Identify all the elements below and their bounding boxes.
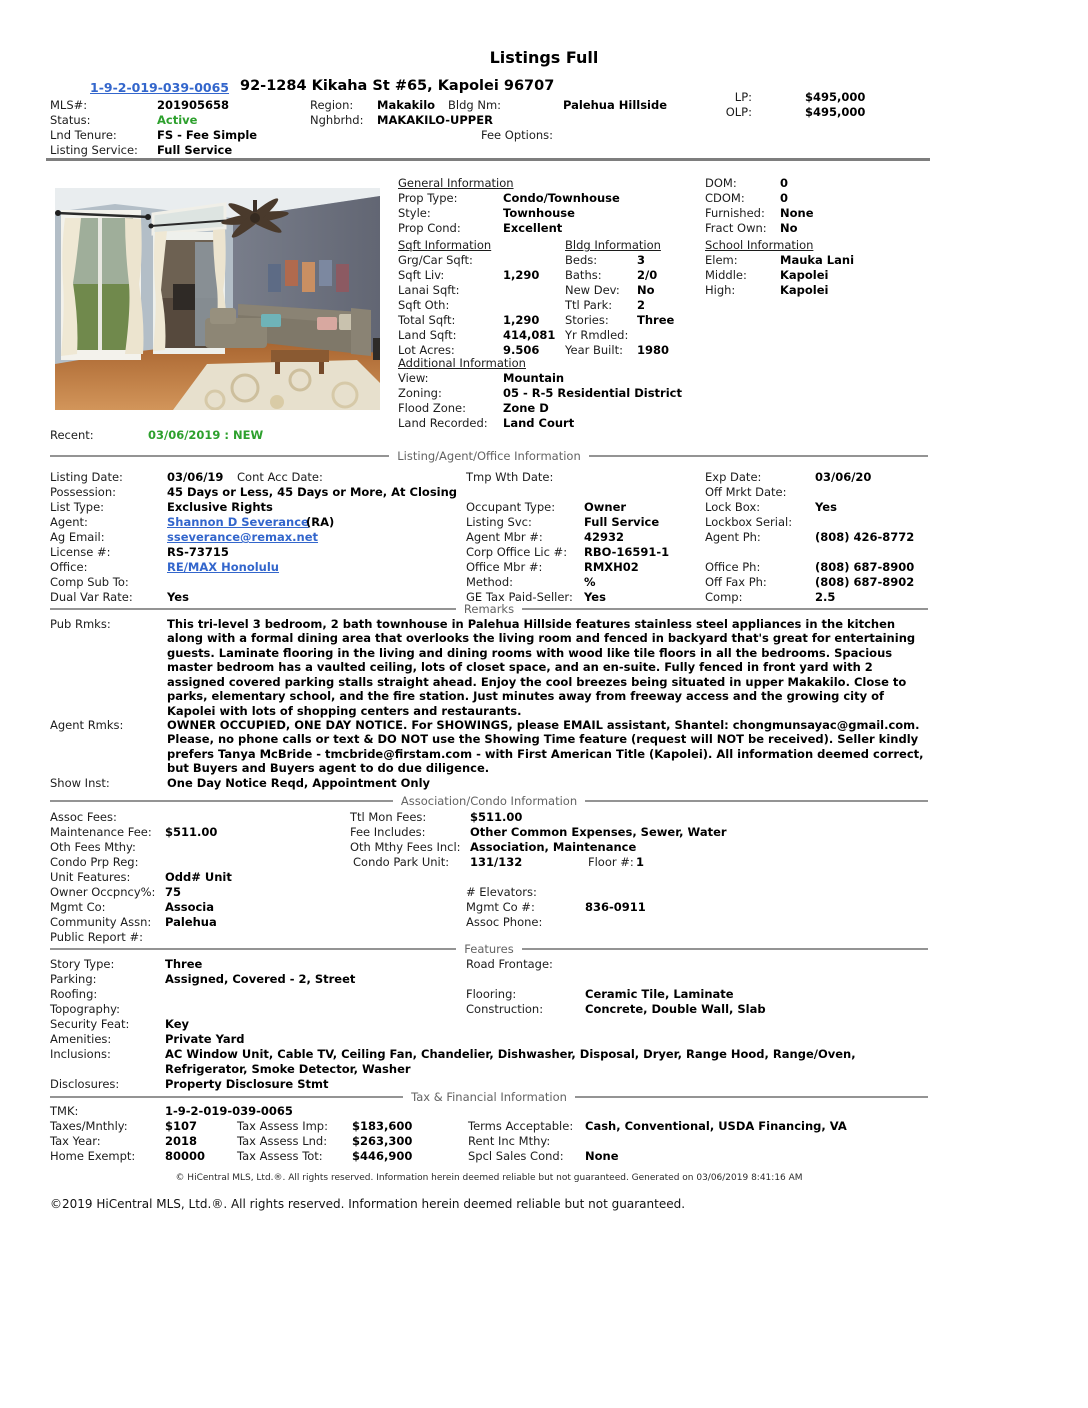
field-label: Road Frontage: xyxy=(466,957,553,971)
field-label: Lot Acres: xyxy=(398,343,455,357)
recent-status: 03/06/2019 : NEW xyxy=(148,428,263,442)
divider-line xyxy=(522,608,928,610)
section-divider-listing: Listing/Agent/Office Information xyxy=(50,448,928,463)
field-label: Rent Inc Mthy: xyxy=(468,1134,550,1148)
field-value: Condo/Townhouse xyxy=(503,191,620,205)
field-value: $183,600 xyxy=(352,1119,412,1133)
field-label: Assoc Phone: xyxy=(466,915,542,929)
field-value: Full Service xyxy=(157,143,232,157)
field-label: Off Mrkt Date: xyxy=(705,485,786,499)
field-label: Sqft Liv: xyxy=(398,268,444,282)
field-label: Lock Box: xyxy=(705,500,760,514)
field-value: Private Yard xyxy=(165,1032,245,1046)
remarks-line: master bedroom has a vaulted ceiling, lo… xyxy=(167,660,873,674)
field-label: TMK: xyxy=(50,1104,78,1118)
field-label: Zoning: xyxy=(398,386,442,400)
field-label: Occupant Type: xyxy=(466,500,555,514)
field-value: 2018 xyxy=(165,1134,197,1148)
field-label: Listing Service: xyxy=(50,143,138,157)
section-divider-features: Features xyxy=(50,941,928,956)
field-label: Lanai Sqft: xyxy=(398,283,459,297)
divider-line xyxy=(589,455,928,457)
field-value: $446,900 xyxy=(352,1149,412,1163)
field-label: Listing Date: xyxy=(50,470,123,484)
field-label: Baths: xyxy=(565,268,602,282)
section-heading-additional: Additional Information xyxy=(398,356,526,370)
remarks-line: guests. Laminate flooring in the living … xyxy=(167,646,892,660)
field-value: Key xyxy=(165,1017,189,1031)
field-label: View: xyxy=(398,371,429,385)
field-label: Topography: xyxy=(50,1002,120,1016)
section-title: Features xyxy=(464,942,513,956)
field-label: Assoc Fees: xyxy=(50,810,117,824)
field-label: Amenities: xyxy=(50,1032,111,1046)
section-divider-remarks: Remarks xyxy=(50,601,928,616)
status-badge: Active xyxy=(157,113,197,127)
field-label: Cont Acc Date: xyxy=(237,470,323,484)
field-label: Grg/Car Sqft: xyxy=(398,253,473,267)
field-label: CDOM: xyxy=(705,191,745,205)
field-label: Fee Options: xyxy=(481,128,553,142)
section-title: Remarks xyxy=(464,602,514,616)
field-label: Taxes/Mnthly: xyxy=(50,1119,128,1133)
field-label: Roofing: xyxy=(50,987,97,1001)
field-label: License #: xyxy=(50,545,111,559)
header-rule xyxy=(46,158,930,161)
field-label: Exp Date: xyxy=(705,470,761,484)
field-value: 1,290 xyxy=(503,313,539,327)
field-value: Three xyxy=(637,313,674,327)
field-label: Mgmt Co #: xyxy=(466,900,535,914)
field-value: Townhouse xyxy=(503,206,575,220)
divider-line xyxy=(575,1096,928,1098)
field-label: # Elevators: xyxy=(466,885,537,899)
section-heading-bldg: Bldg Information xyxy=(565,238,661,252)
field-label: Flooring: xyxy=(466,987,516,1001)
field-label: Lockbox Serial: xyxy=(705,515,792,529)
field-label: Fract Own: xyxy=(705,221,767,235)
field-value: Other Common Expenses, Sewer, Water xyxy=(470,825,727,839)
field-label: Tax Year: xyxy=(50,1134,101,1148)
field-value: 1,290 xyxy=(503,268,539,282)
field-label: Prop Type: xyxy=(398,191,458,205)
list-price: $495,000 xyxy=(805,90,865,104)
field-label: Stories: xyxy=(565,313,609,327)
field-value: Refrigerator, Smoke Detector, Washer xyxy=(165,1062,411,1076)
field-value: Palehua Hillside xyxy=(563,98,667,112)
field-value: 1980 xyxy=(637,343,669,357)
field-label: Flood Zone: xyxy=(398,401,466,415)
field-label: Show Inst: xyxy=(50,776,110,790)
field-value: Three xyxy=(165,957,202,971)
field-label: Condo Park Unit: xyxy=(353,855,449,869)
agent-email-link[interactable]: sseverance@remax.net xyxy=(167,530,318,544)
section-divider-assoc: Association/Condo Information xyxy=(50,793,928,808)
field-value: Owner xyxy=(584,500,626,514)
field-value: 9.506 xyxy=(503,343,539,357)
remarks-line: parks, elementary school, and the fire s… xyxy=(167,689,884,703)
field-label: Home Exempt: xyxy=(50,1149,135,1163)
field-label: Agent: xyxy=(50,515,88,529)
field-label: Owner Occpncy%: xyxy=(50,885,155,899)
property-address: 92-1284 Kikaha St #65, Kapolei 96707 xyxy=(240,78,554,94)
field-value: No xyxy=(637,283,655,297)
field-value: Odd# Unit xyxy=(165,870,232,884)
field-value: Cash, Conventional, USDA Financing, VA xyxy=(585,1119,847,1133)
field-label: Off Fax Ph: xyxy=(705,575,767,589)
field-label: Fee Includes: xyxy=(350,825,426,839)
field-value: 1-9-2-019-039-0065 xyxy=(165,1104,293,1118)
field-value: None xyxy=(780,206,814,220)
field-label: MLS#: xyxy=(50,98,87,112)
tmk-link[interactable]: 1-9-2-019-039-0065 xyxy=(90,80,229,95)
field-value: No xyxy=(780,221,798,235)
field-value: AC Window Unit, Cable TV, Ceiling Fan, C… xyxy=(165,1047,856,1061)
section-heading-general: General Information xyxy=(398,176,514,190)
field-value: RS-73715 xyxy=(167,545,229,559)
generated-disclaimer: © HiCentral MLS, Ltd.®. All rights reser… xyxy=(50,1173,928,1183)
field-label: Listing Svc: xyxy=(466,515,532,529)
field-label: Office Ph: xyxy=(705,560,760,574)
section-title: Tax & Financial Information xyxy=(411,1090,567,1104)
field-value: Yes xyxy=(815,500,837,514)
remarks-line: but Buyers and Buyers agent to do due di… xyxy=(167,761,489,775)
field-label: Security Feat: xyxy=(50,1017,129,1031)
field-label: Oth Fees Mthy: xyxy=(50,840,136,854)
field-label: Elem: xyxy=(705,253,738,267)
field-label: Total Sqft: xyxy=(398,313,455,327)
divider-line xyxy=(522,948,928,950)
field-label: Land Sqft: xyxy=(398,328,457,342)
divider-line xyxy=(50,800,393,802)
field-value: 201905658 xyxy=(157,98,229,112)
field-value: 2 xyxy=(637,298,645,312)
field-value: Kapolei xyxy=(780,268,829,282)
divider-line xyxy=(50,455,389,457)
field-label: Story Type: xyxy=(50,957,114,971)
section-heading-school: School Information xyxy=(705,238,813,252)
field-value: Makakilo xyxy=(377,98,435,112)
field-label: Tax Assess Lnd: xyxy=(237,1134,327,1148)
remarks-line: OWNER OCCUPIED, ONE DAY NOTICE. For SHOW… xyxy=(167,718,920,732)
field-value: Mountain xyxy=(503,371,564,385)
field-value: 03/06/19 xyxy=(167,470,223,484)
divider-line xyxy=(585,800,928,802)
field-label: Office Mbr #: xyxy=(466,560,542,574)
remarks-line: assigned covered parking stalls straight… xyxy=(167,675,906,689)
field-value: Excellent xyxy=(503,221,562,235)
field-label: Ttl Mon Fees: xyxy=(350,810,426,824)
field-label: Office: xyxy=(50,560,87,574)
field-label: Recent: xyxy=(50,428,94,442)
remarks-line: This tri-level 3 bedroom, 2 bath townhou… xyxy=(167,617,895,631)
field-value: Kapolei xyxy=(780,283,829,297)
field-value: RMXH02 xyxy=(584,560,639,574)
field-label: High: xyxy=(705,283,735,297)
field-label: Mgmt Co: xyxy=(50,900,106,914)
agent-ra-suffix: (RA) xyxy=(306,515,334,529)
remarks-line: along with a formal dining area that ove… xyxy=(167,631,915,645)
field-value: 03/06/20 xyxy=(815,470,871,484)
field-label: Tax Assess Tot: xyxy=(237,1149,323,1163)
field-label: Furnished: xyxy=(705,206,765,220)
field-value: $107 xyxy=(165,1119,197,1133)
field-value: (808) 687-8900 xyxy=(815,560,914,574)
agent-link[interactable]: Shannon D Severance xyxy=(167,515,309,529)
field-label: Ttl Park: xyxy=(565,298,612,312)
field-label: Tmp Wth Date: xyxy=(466,470,553,484)
field-label: Prop Cond: xyxy=(398,221,461,235)
listing-photo xyxy=(55,188,380,410)
field-value: Ceramic Tile, Laminate xyxy=(585,987,734,1001)
field-label: Parking: xyxy=(50,972,97,986)
field-label: Terms Acceptable: xyxy=(468,1119,573,1133)
field-value: Land Court xyxy=(503,416,574,430)
field-label: Maintenance Fee: xyxy=(50,825,152,839)
field-value: Full Service xyxy=(584,515,659,529)
field-label: Oth Mthy Fees Incl: xyxy=(350,840,461,854)
field-value: $511.00 xyxy=(470,810,522,824)
remarks-line: prefers Tanya McBride - tmcbride@firstam… xyxy=(167,747,924,761)
field-value: 1 xyxy=(636,855,644,869)
field-value: 3 xyxy=(637,253,645,267)
field-label: Condo Prp Reg: xyxy=(50,855,139,869)
field-label: Sqft Oth: xyxy=(398,298,449,312)
divider-line xyxy=(50,1096,403,1098)
field-value: 414,081 xyxy=(503,328,555,342)
field-label: Style: xyxy=(398,206,431,220)
field-value: 836-0911 xyxy=(585,900,646,914)
remarks-line: Kapolei with lots of shopping centers an… xyxy=(167,704,522,718)
field-value: Assigned, Covered - 2, Street xyxy=(165,972,355,986)
field-value: 75 xyxy=(165,885,181,899)
divider-line xyxy=(50,608,456,610)
field-value: RBO-16591-1 xyxy=(584,545,669,559)
field-value: Exclusive Rights xyxy=(167,500,273,514)
office-link[interactable]: RE/MAX Honolulu xyxy=(167,560,279,574)
field-label: OLP: xyxy=(708,105,752,119)
field-label: Construction: xyxy=(466,1002,543,1016)
copyright-notice: ©2019 HiCentral MLS, Ltd.®. All rights r… xyxy=(50,1197,685,1211)
field-label: Floor #: xyxy=(588,855,634,869)
field-value: One Day Notice Reqd, Appointment Only xyxy=(167,776,430,790)
field-label: Agent Rmks: xyxy=(50,718,123,732)
field-label: Tax Assess Imp: xyxy=(237,1119,328,1133)
field-label: Pub Rmks: xyxy=(50,617,111,631)
remarks-line: Please, no phone calls or text & DO NOT … xyxy=(167,732,918,746)
field-value: (808) 687-8902 xyxy=(815,575,914,589)
field-label: Possession: xyxy=(50,485,116,499)
field-label: Beds: xyxy=(565,253,597,267)
field-label: Land Recorded: xyxy=(398,416,488,430)
field-label: List Type: xyxy=(50,500,104,514)
field-value: 131/132 xyxy=(470,855,522,869)
field-label: Community Assn: xyxy=(50,915,151,929)
field-value: 42932 xyxy=(584,530,624,544)
field-label: Status: xyxy=(50,113,91,127)
field-label: Bldg Nm: xyxy=(448,98,501,112)
field-label: Year Built: xyxy=(565,343,623,357)
field-value: 0 xyxy=(780,176,788,190)
section-divider-tax: Tax & Financial Information xyxy=(50,1089,928,1104)
field-label: Comp Sub To: xyxy=(50,575,129,589)
field-label: New Dev: xyxy=(565,283,620,297)
section-heading-sqft: Sqft Information xyxy=(398,238,491,252)
field-value: % xyxy=(584,575,596,589)
field-label: Yr Rmdled: xyxy=(565,328,628,342)
field-label: Ag Email: xyxy=(50,530,105,544)
field-value: Zone D xyxy=(503,401,549,415)
field-value: Association, Maintenance xyxy=(470,840,636,854)
living-room-photo-graphic xyxy=(55,188,380,410)
field-value: MAKAKILO-UPPER xyxy=(377,113,493,127)
field-label: Spcl Sales Cond: xyxy=(468,1149,564,1163)
field-label: Agent Ph: xyxy=(705,530,761,544)
field-value: $511.00 xyxy=(165,825,217,839)
field-label: Unit Features: xyxy=(50,870,130,884)
field-value: 0 xyxy=(780,191,788,205)
field-label: Agent Mbr #: xyxy=(466,530,543,544)
field-value: Concrete, Double Wall, Slab xyxy=(585,1002,766,1016)
field-value: 05 - R-5 Residential District xyxy=(503,386,682,400)
field-label: LP: xyxy=(708,90,752,104)
field-value: Palehua xyxy=(165,915,217,929)
page-title: Listings Full xyxy=(0,48,1088,67)
original-list-price: $495,000 xyxy=(805,105,865,119)
field-value: (808) 426-8772 xyxy=(815,530,914,544)
field-label: DOM: xyxy=(705,176,737,190)
field-value: $263,300 xyxy=(352,1134,412,1148)
field-label: Method: xyxy=(466,575,513,589)
field-value: 2/0 xyxy=(637,268,657,282)
section-title: Association/Condo Information xyxy=(401,794,577,808)
divider-line xyxy=(50,948,456,950)
field-label: Region: xyxy=(310,98,353,112)
field-value: None xyxy=(585,1149,619,1163)
field-label: Corp Office Lic #: xyxy=(466,545,567,559)
section-title: Listing/Agent/Office Information xyxy=(397,449,580,463)
field-value: Mauka Lani xyxy=(780,253,854,267)
field-label: Middle: xyxy=(705,268,747,282)
field-value: FS - Fee Simple xyxy=(157,128,257,142)
field-value: 80000 xyxy=(165,1149,205,1163)
field-label: Lnd Tenure: xyxy=(50,128,117,142)
field-value: 45 Days or Less, 45 Days or More, At Clo… xyxy=(167,485,457,499)
field-label: Nghbrhd: xyxy=(310,113,363,127)
field-label: Inclusions: xyxy=(50,1047,111,1061)
listings-full-page: Listings Full 1-9-2-019-039-0065 92-1284… xyxy=(0,0,1088,1408)
field-value: Associa xyxy=(165,900,214,914)
